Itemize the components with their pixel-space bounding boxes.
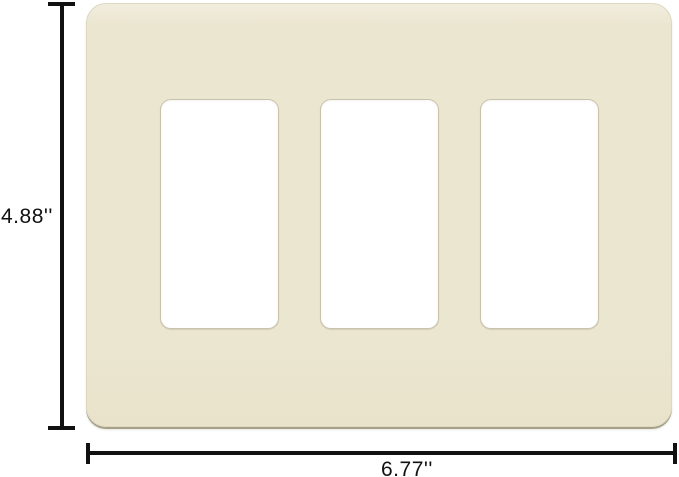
wall-plate bbox=[86, 3, 672, 427]
height-dimension-line bbox=[60, 3, 64, 430]
width-dimension-label: 6.77'' bbox=[381, 459, 433, 477]
outlet-cutout-3 bbox=[480, 99, 599, 329]
outlet-cutout-1 bbox=[160, 99, 279, 329]
height-dimension-cap-top bbox=[48, 2, 75, 6]
height-dimension-label: 4.88'' bbox=[1, 206, 53, 227]
width-dimension-line bbox=[88, 451, 676, 455]
height-dimension-cap-bottom bbox=[48, 426, 75, 430]
width-dimension-cap-left bbox=[86, 443, 90, 464]
width-dimension-cap-right bbox=[673, 443, 677, 464]
product-dimension-diagram: 4.88'' 6.77'' bbox=[0, 0, 679, 477]
outlet-cutout-2 bbox=[320, 99, 439, 329]
